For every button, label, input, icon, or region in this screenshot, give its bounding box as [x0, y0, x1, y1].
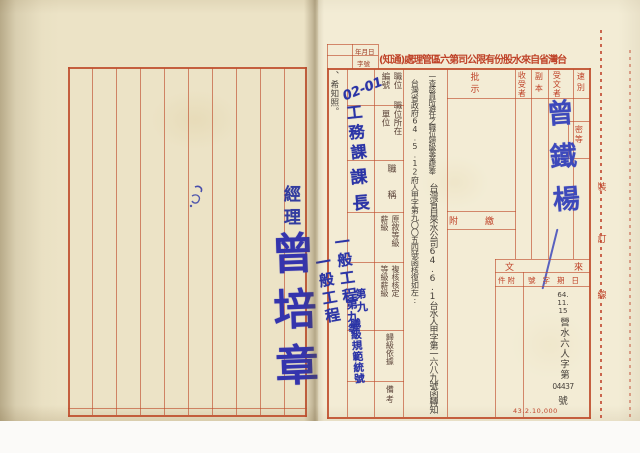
binding-char-ding: 訂: [595, 234, 604, 243]
incoming-subheader-line: [495, 286, 590, 287]
attachments-strip-bottom: [447, 229, 516, 230]
incoming-date-token: 64.: [557, 291, 568, 299]
manager-label: 經理: [280, 185, 298, 231]
body-text-line2: 台灣省自來水公司64.6.1台水人甲字第一六八九號函轉知: [427, 183, 436, 413]
left-form-rule: [164, 68, 165, 415]
form-print-code: 43.2.10,000: [513, 407, 558, 415]
form-border-top: [327, 68, 591, 70]
left-form-border-bottom: [68, 415, 307, 417]
table-row-line: [347, 262, 404, 263]
body-text-line4: 、希知照。: [329, 71, 338, 116]
form-line-v: [403, 69, 404, 417]
form-border-bottom: [327, 417, 591, 419]
binding-char-xian: 線: [595, 290, 604, 299]
body-text-line1: 一查該員所遴任之職位歸級案業經奉: [428, 73, 436, 174]
received-box-left: [327, 44, 328, 69]
form-title: (知通)處理管區六第司公限有份股水來自省灣台: [379, 51, 566, 66]
incoming-number-text: 營水六人字第: [556, 317, 570, 380]
incoming-section-label: 文 來: [505, 260, 597, 273]
left-form-border-left: [68, 67, 70, 417]
received-number-label: 字號: [357, 58, 370, 68]
incoming-date-token: 11.: [557, 299, 568, 307]
left-form-rule: [260, 68, 261, 415]
copy-label: 副本: [534, 72, 542, 96]
incoming-box-left: [495, 259, 496, 417]
attachments-strip-top: [447, 211, 516, 212]
table-header-classification-basis: 歸級依據: [385, 333, 393, 365]
incoming-attachment-label: 件附: [498, 275, 517, 286]
ink-squiggle: [188, 184, 210, 210]
body-text-line3: 台灣省政府64.5.12府人甲字第九〇〇五四號函核復如左:: [410, 79, 418, 305]
page-edge-dotted-line: [629, 50, 631, 420]
instructions-label: 批示: [468, 72, 477, 96]
incoming-number-suffix: 號: [558, 393, 568, 407]
page-fold-shadow: [304, 0, 324, 421]
speed-label: 速別: [576, 72, 584, 94]
incoming-divider-v: [523, 272, 524, 417]
received-date-label: 年月日: [355, 46, 375, 56]
form-line-v: [447, 69, 448, 417]
left-form-rule: [236, 68, 237, 415]
table-header-original-grade: 原敘等級 薪級: [379, 215, 401, 247]
left-form-rule: [188, 68, 189, 415]
form-border-left: [327, 68, 329, 419]
screenshot: 經理 曾培章 (知通)處理管區六第司公限有份股水來自省灣台 年月日 字號 批示 …: [0, 0, 640, 453]
left-form-rule: [140, 68, 141, 415]
received-box-divider: [352, 44, 353, 69]
copy-recipient-label: 收受者: [517, 71, 525, 98]
incoming-document-number: 64. 11. 15 營水六人字第 04437 號: [551, 291, 575, 407]
handwriting-job-title: 課長: [346, 167, 368, 220]
binding-line: [600, 30, 602, 420]
incoming-number-digits: 04437: [552, 382, 573, 391]
received-box-right: [378, 44, 379, 69]
scan-margin: U-2009-003-0132-PA: [0, 421, 640, 453]
classification-label: 密等: [574, 125, 582, 145]
table-header-job-title: 職 稱: [385, 164, 394, 203]
table-header-verified-grade: 複核核定 等級薪級: [379, 265, 401, 297]
incoming-date-token: 15: [559, 307, 568, 315]
binding-char-zhuang: 裝: [595, 182, 604, 191]
recipient-label: 受文者: [552, 71, 560, 98]
left-form-rule: [92, 68, 93, 415]
scanned-paper: 經理 曾培章 (知通)處理管區六第司公限有份股水來自省灣台 年月日 字號 批示 …: [0, 0, 640, 421]
attachments-label: 附 繳: [449, 214, 494, 227]
table-header-remarks: 備考: [385, 385, 393, 405]
form-line-v: [374, 69, 375, 417]
incoming-date-number-label: 號字期日: [528, 275, 586, 286]
table-header-unit: 職位所在 單位: [379, 101, 403, 135]
left-form-rule: [116, 68, 117, 415]
left-form-rule: [212, 68, 213, 415]
